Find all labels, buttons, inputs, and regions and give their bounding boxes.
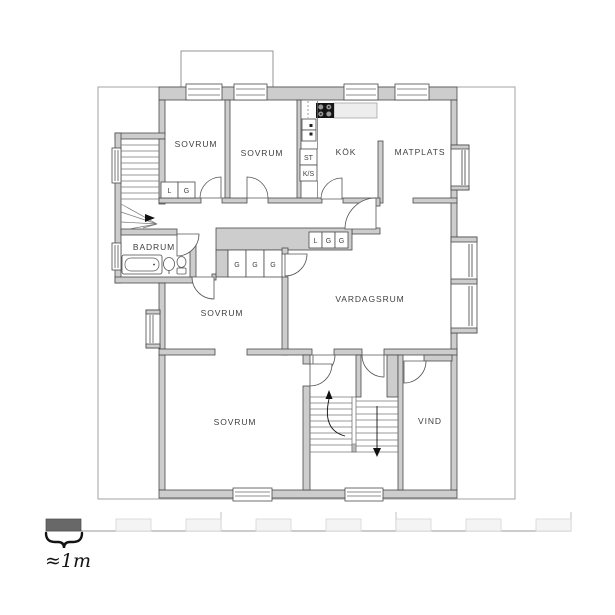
floor-plan-page: L G ST K/S L G G G G G	[0, 0, 615, 615]
room-label-sovrum-nw: SOVRUM	[175, 139, 218, 149]
window-top-1	[186, 84, 222, 100]
door-sovrum-s	[310, 364, 332, 386]
floor-plan-drawing: L G ST K/S L G G G G G	[0, 0, 615, 615]
window-kitchen	[344, 84, 378, 100]
closet-label-nw-l: L	[168, 188, 172, 195]
window-matplats-top	[395, 84, 429, 100]
door-sovrum-nw	[200, 177, 221, 198]
door-vind	[404, 361, 426, 383]
door-sovrum-mid	[192, 277, 214, 299]
closet-label-hall-l: L	[314, 238, 318, 245]
scale-segment-dark	[46, 519, 81, 531]
closet-label-hall-g1: G	[326, 238, 331, 245]
room-label-badrum: BADRUM	[133, 242, 175, 252]
room-label-vardagsrum: VARDAGSRUM	[335, 294, 404, 304]
closet-label-hall-g2: G	[339, 238, 344, 245]
room-label-sovrum-mid: SOVRUM	[201, 308, 244, 318]
scale-label: ≈1m	[45, 550, 91, 572]
scale-brace-icon	[46, 533, 82, 548]
door-kok	[321, 178, 342, 199]
closets: L G ST K/S L G G G G G	[161, 149, 348, 277]
window-bay-vardagsrum	[451, 237, 477, 333]
door-sovrum-n	[247, 177, 268, 198]
scale-bar: ≈1m	[45, 512, 571, 572]
bathtub-icon	[122, 255, 162, 274]
closet-label-mid-g2: G	[252, 262, 257, 269]
window-bottom-1	[233, 488, 272, 501]
window-bottom-2	[345, 488, 383, 501]
balcony	[181, 51, 273, 87]
sink-icon	[164, 258, 175, 275]
window-bay-matplats	[451, 145, 469, 190]
closet-label-mid-g3: G	[270, 262, 275, 269]
stair-direction-arrow-icon	[145, 214, 155, 222]
room-label-matplats: MATPLATS	[395, 147, 446, 157]
staircase-upper	[121, 145, 159, 229]
door-stairhall-east	[362, 355, 384, 377]
closet-label-mid-g1: G	[234, 262, 239, 269]
stove-icon	[316, 103, 334, 118]
room-label-kok: KÖK	[336, 147, 357, 157]
refrigerator-icon	[302, 119, 316, 141]
interior-walls	[121, 100, 457, 490]
room-label-sovrum-s: SOVRUM	[214, 417, 257, 427]
kitchen-counter	[334, 103, 377, 118]
bathroom-fixtures	[122, 255, 186, 274]
window-top-2	[234, 84, 267, 100]
door-mid-vardagsrum	[285, 254, 307, 276]
window-badrum	[112, 243, 121, 270]
toilet-icon	[177, 257, 186, 275]
closet-label-st: ST	[304, 155, 314, 162]
window-stair-annex	[112, 148, 121, 183]
closet-label-nw-g: G	[184, 188, 189, 195]
room-label-sovrum-n: SOVRUM	[241, 148, 284, 158]
room-label-vind: VIND	[418, 416, 442, 426]
staircase-lower	[310, 390, 398, 457]
closet-label-ks: K/S	[303, 171, 315, 178]
window-bay-left	[146, 310, 160, 348]
